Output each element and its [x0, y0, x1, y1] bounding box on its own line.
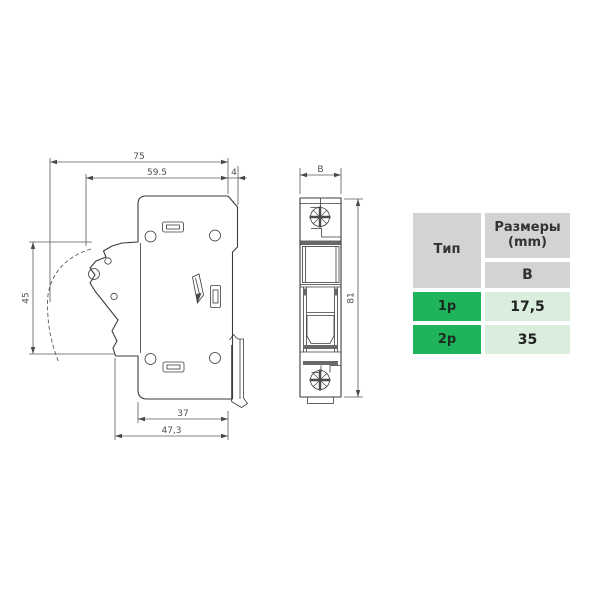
side-vslot [211, 286, 221, 308]
top-cap-step [311, 199, 321, 208]
table-header-sizes-line2: (mm) [508, 236, 547, 251]
table-header-b: B [485, 262, 570, 288]
arrowhead [300, 173, 307, 177]
side-body-outline [90, 196, 238, 399]
side-vslot-inner [213, 290, 218, 303]
upper-hole-left [145, 231, 156, 242]
arrowhead [50, 160, 57, 164]
lever-rivet-top [105, 258, 111, 264]
arrowhead [31, 347, 35, 354]
table-header-type: Тип [413, 213, 481, 288]
table-header-sizes-line1: Размеры [494, 221, 560, 236]
fuse-window [303, 247, 340, 283]
top-cap-step [311, 229, 341, 238]
dim-label-front-height: 81 [347, 292, 357, 303]
table-cell-b-1p: 17,5 [485, 292, 570, 321]
front-foot [308, 397, 334, 404]
arrowhead [334, 173, 341, 177]
dim-label-front-width: B [317, 165, 323, 175]
lever-swing-arc [48, 249, 92, 362]
front-view [300, 198, 341, 404]
front-band-bottom [303, 361, 338, 365]
table-header-sizes: Размеры (mm) [485, 213, 570, 258]
lever-rivet-bottom [111, 293, 117, 299]
dim-label-total-width: 75 [133, 152, 144, 162]
table-cell-b-2p: 35 [485, 325, 570, 354]
dim-label-lever-height: 45 [22, 292, 32, 303]
lower-slot [163, 362, 184, 372]
lower-hole-left [145, 354, 156, 365]
upper-slot [163, 222, 184, 232]
wedge-inner-line [196, 278, 201, 296]
dim-label-tab-depth: 4 [231, 168, 237, 178]
lower-hole-right [210, 353, 221, 364]
upper-slot-inner [167, 225, 180, 229]
size-table-type-column: Тип 1p 2p [413, 213, 481, 354]
side-view [48, 196, 248, 408]
arrowhead [356, 390, 360, 397]
arrowhead [221, 160, 228, 164]
arrowhead [86, 176, 93, 180]
arrowhead [138, 417, 145, 421]
arrowhead [221, 434, 228, 438]
fuse-carrier [301, 287, 341, 352]
top-screw-icon [310, 207, 331, 228]
arrowhead [221, 417, 228, 421]
dim-label-base-inner-width: 37 [177, 409, 188, 419]
front-band-top [301, 241, 341, 246]
size-table-size-column: Размеры (mm) B 17,5 35 [485, 213, 570, 354]
arrowhead [238, 176, 245, 180]
arrowhead [356, 199, 360, 206]
table-cell-type-1p: 1p [413, 292, 481, 321]
size-table: Тип 1p 2p Размеры (mm) B 17,5 35 [413, 213, 570, 354]
arrowhead [31, 242, 35, 249]
dim-label-base-outer-width: 47,3 [161, 426, 181, 436]
lower-slot-inner [167, 365, 180, 369]
page: 75 59.5 4 45 37 [0, 0, 600, 600]
upper-hole-right [210, 230, 221, 241]
arrowhead [221, 176, 228, 180]
bottom-cap-step [330, 366, 341, 373]
arrowhead [115, 434, 122, 438]
dim-label-body-width: 59.5 [147, 168, 167, 178]
table-cell-type-2p: 2p [413, 325, 481, 354]
